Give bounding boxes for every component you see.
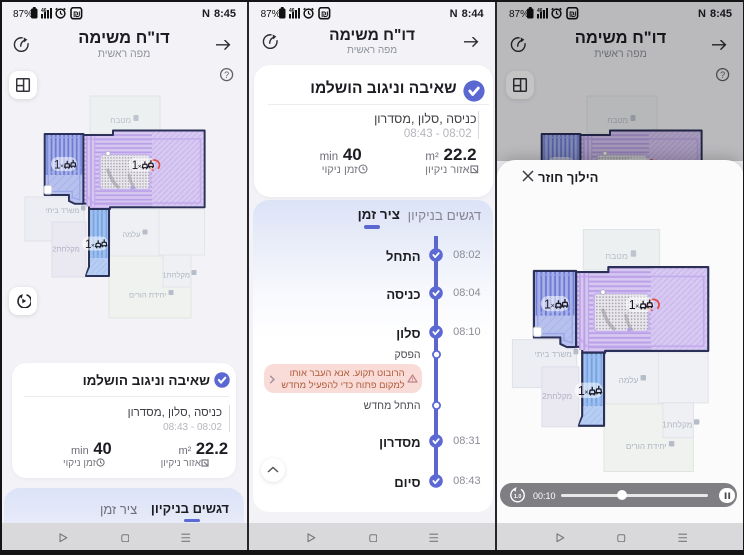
- svg-text:1.0: 1.0: [514, 494, 522, 500]
